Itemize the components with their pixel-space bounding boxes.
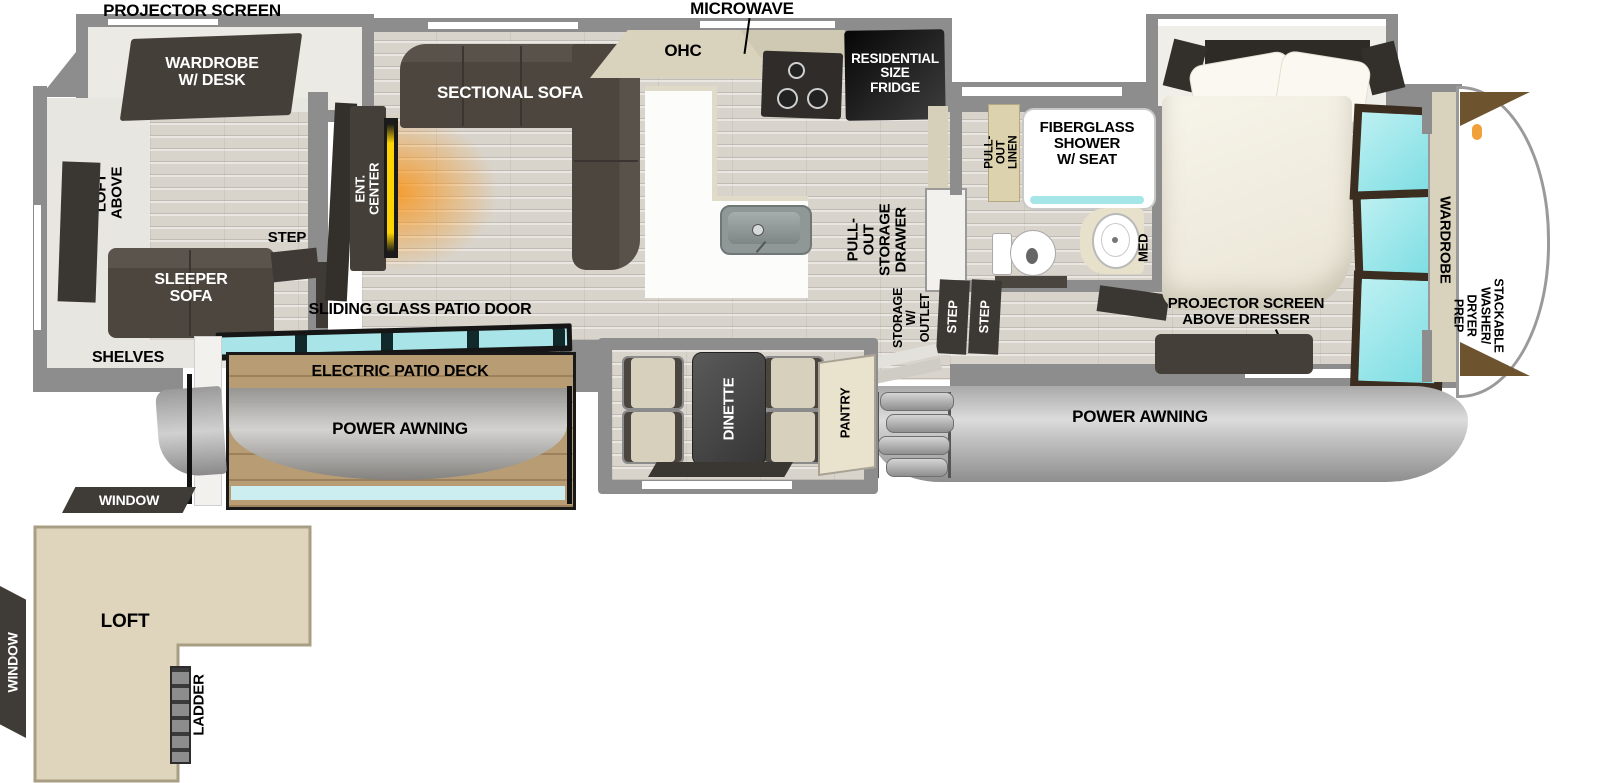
sofa-seam <box>574 160 638 162</box>
faucet <box>752 224 764 236</box>
window-band <box>700 21 835 28</box>
wardrobe-nub <box>1422 92 1432 134</box>
label-power-awning-left: POWER AWNING <box>310 420 490 438</box>
wardrobe-nub <box>1422 330 1432 382</box>
island-edge <box>645 86 717 91</box>
window-band <box>962 87 1122 96</box>
dinette-chair <box>622 356 684 410</box>
label-sectional-sofa: SECTIONAL SOFA <box>410 84 610 102</box>
label-shelves: SHELVES <box>58 350 198 367</box>
sink-basin <box>728 212 800 244</box>
label-step-rear: STEP <box>256 230 318 246</box>
label-projector-screen-rear: PROJECTOR SCREEN <box>58 2 326 20</box>
island-edge <box>712 196 808 201</box>
label-electric-deck: ELECTRIC PATIO DECK <box>295 364 505 381</box>
label-pullout-linen: PULL-OUT LINEN <box>982 103 1022 201</box>
step-box-1: STEP <box>936 279 970 354</box>
fireplace-glow <box>383 106 508 278</box>
dinette-chair <box>762 356 824 410</box>
entry-step <box>878 436 950 455</box>
label-med: MED <box>1128 220 1158 276</box>
rear-bottom-wall <box>33 368 183 392</box>
window-band <box>428 22 578 29</box>
label-pantry: PANTRY <box>818 358 872 468</box>
vanity-drain <box>1112 237 1118 243</box>
floorplan: PROJECTOR SCREEN WARDROBE W/ DESK LOFT A… <box>0 0 1600 783</box>
bath-mat <box>995 276 1067 288</box>
label-sleeper-sofa: SLEEPER SOFA <box>112 272 270 306</box>
dinette-table: DINETTE <box>692 352 766 466</box>
burner <box>807 88 828 109</box>
label-projector-dresser: PROJECTOR SCREEN ABOVE DRESSER <box>1130 296 1362 328</box>
toilet-drain <box>1026 248 1038 264</box>
shower-glass <box>1030 196 1144 204</box>
window-label-left: WINDOW <box>0 586 26 738</box>
label-ladder: LADDER <box>186 642 214 768</box>
label-ent-center: ENT. CENTER <box>348 104 386 274</box>
power-awning-right <box>872 386 1468 482</box>
entry-step <box>886 414 954 433</box>
label-ohc: OHC <box>648 42 718 60</box>
burner <box>777 88 798 109</box>
rear-tv-panel <box>58 161 101 302</box>
fireplace-flame <box>387 124 394 252</box>
entry-step <box>886 458 948 477</box>
dinette-chair <box>762 410 824 464</box>
step-box-2: STEP <box>968 279 1002 354</box>
dresser <box>1155 334 1313 374</box>
label-loft: LOFT <box>85 612 165 632</box>
deck-post <box>567 386 572 504</box>
label-wardrobe-desk: WARDROBE W/ DESK <box>132 56 292 90</box>
wall-cabinet-tan <box>928 106 948 188</box>
slide-step-bar <box>648 462 793 477</box>
bed-quilt <box>1162 96 1352 310</box>
label-microwave: MICROWAVE <box>672 0 812 18</box>
front-cap-handle <box>1472 124 1482 140</box>
rear-window <box>34 205 41 330</box>
window-label-top: WINDOW <box>62 487 196 513</box>
island-edge <box>712 86 717 201</box>
label-sliding-door: SLIDING GLASS PATIO DOOR <box>285 302 555 319</box>
label-fridge: RESIDENTIAL SIZE FRIDGE <box>847 52 943 95</box>
deck-water-strip <box>231 486 565 500</box>
stove <box>761 51 843 120</box>
label-shower: FIBERGLASS SHOWER W/ SEAT <box>1026 120 1148 168</box>
label-power-awning-right: POWER AWNING <box>1030 408 1250 426</box>
step-box-rear <box>271 248 320 283</box>
label-stackable: STACKABLE WASHER/ DRYER PREP <box>1448 250 1508 380</box>
bath-left-wall <box>950 100 962 195</box>
window-band <box>1158 19 1386 26</box>
burner <box>788 62 805 79</box>
deck-post <box>187 374 192 504</box>
dinette-chair <box>622 410 684 464</box>
toilet-tank <box>992 233 1012 275</box>
entry-step <box>880 392 954 411</box>
window-band <box>642 481 792 489</box>
